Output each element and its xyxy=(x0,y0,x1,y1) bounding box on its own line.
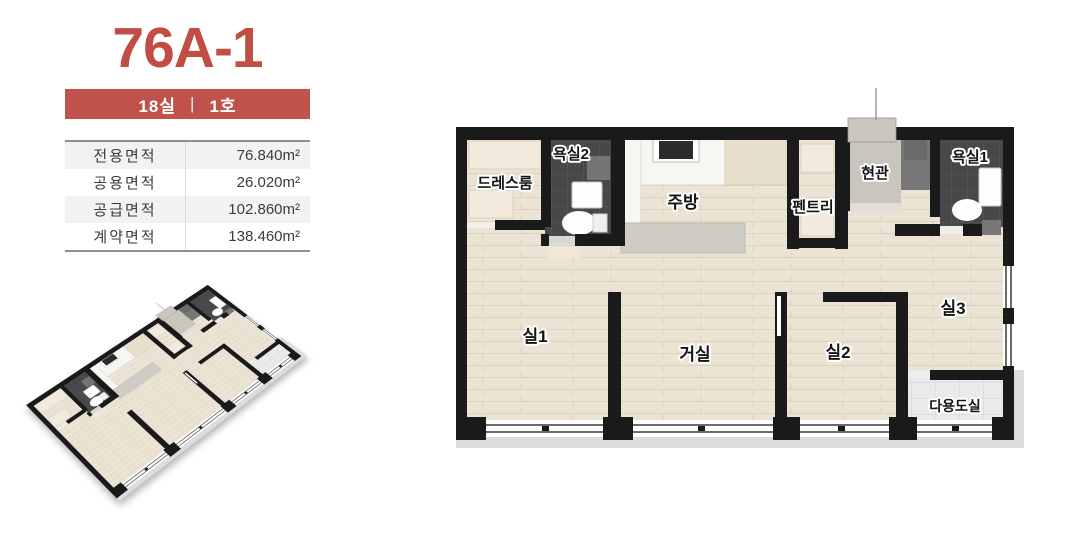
room-label-pantry: 펜트리 xyxy=(792,199,833,216)
area-label: 계약면적 xyxy=(65,223,186,251)
room-label-living-room: 거실 xyxy=(679,345,710,364)
page: { "unit": { "title": "76A-1", "badge_roo… xyxy=(0,0,1085,559)
room-label-entrance: 현관 xyxy=(861,165,889,182)
room-label-dress-room: 드레스룸 xyxy=(477,175,532,192)
unit-info-panel: 76A-1 18실 | 1호 전용면적 76.840m² 공용면적 26.020… xyxy=(65,10,310,252)
area-label: 공용면적 xyxy=(65,169,186,196)
area-value: 138.460m² xyxy=(186,223,311,251)
balcony-ledge xyxy=(456,437,1024,448)
table-row: 공급면적 102.860m² xyxy=(65,196,310,223)
right-window xyxy=(1003,266,1014,366)
area-label: 전용면적 xyxy=(65,141,186,169)
area-value: 76.840m² xyxy=(186,141,311,169)
room-label-kitchen: 주방 xyxy=(667,193,699,212)
room-label-bathroom-2: 욕실2 xyxy=(553,146,589,163)
area-value: 26.020m² xyxy=(186,169,311,196)
badge-room-count: 18실 xyxy=(138,92,176,117)
badge-unit-number: 1호 xyxy=(209,92,236,117)
table-row: 공용면적 26.020m² xyxy=(65,169,310,196)
kitchen-island xyxy=(621,223,745,253)
entrance-vestibule xyxy=(848,118,896,142)
unit-badge: 18실 | 1호 xyxy=(65,89,310,119)
room-label-room-2: 실2 xyxy=(825,343,850,362)
toilet xyxy=(952,199,982,221)
toilet xyxy=(562,211,596,235)
unit-title: 76A-1 xyxy=(65,10,310,86)
room-label-bathroom-1: 욕실1 xyxy=(952,149,988,166)
floor-plan-3d-thumbnail xyxy=(20,248,310,508)
badge-separator: | xyxy=(190,94,195,114)
table-row: 전용면적 76.840m² xyxy=(65,141,310,169)
floor-plan-geometry xyxy=(456,88,1024,448)
bottom-windows xyxy=(456,417,1014,440)
area-value: 102.860m² xyxy=(186,196,311,223)
room-label-room-3: 실3 xyxy=(940,299,965,318)
room-label-room-1: 실1 xyxy=(522,327,547,346)
table-row: 계약면적 138.460m² xyxy=(65,223,310,251)
area-label: 공급면적 xyxy=(65,196,186,223)
floor-plan: 드레스룸 욕실2 주방 펜트리 현관 욕실1 실1 거실 실2 실3 다용도실 xyxy=(455,126,1015,460)
room-label-utility-room: 다용도실 xyxy=(929,398,981,414)
area-table: 전용면적 76.840m² 공용면적 26.020m² 공급면적 102.860… xyxy=(65,140,310,252)
